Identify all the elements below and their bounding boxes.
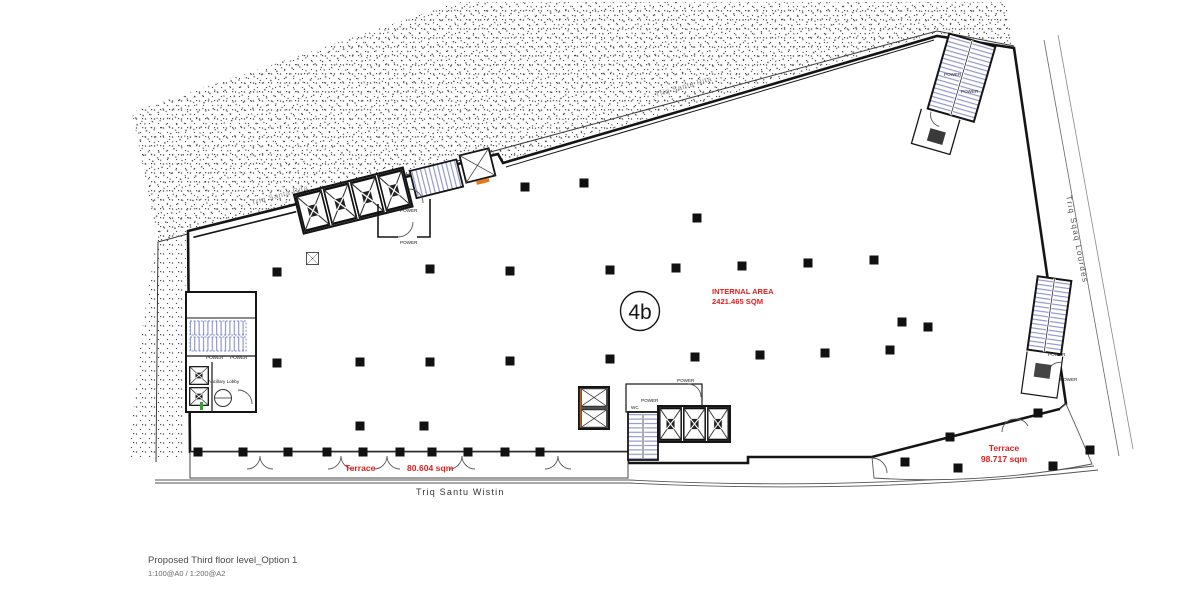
title-block: Proposed Third floor level_Option 1 1:10… <box>148 555 297 578</box>
column <box>580 179 589 188</box>
street-east-label: Triq Sqaq Lourdes <box>1064 195 1090 284</box>
floor-plan-page: POWER POWER POWER POWER Ancillary Lobby <box>0 0 1200 592</box>
column <box>359 448 368 457</box>
unit-number: 4b <box>628 301 651 324</box>
floor-plan-drawing: POWER POWER POWER POWER Ancillary Lobby <box>0 0 1200 592</box>
column <box>1049 462 1058 471</box>
column <box>464 448 473 457</box>
power-label: POWER <box>1048 352 1066 357</box>
column <box>954 464 963 473</box>
power-label: POWER <box>944 72 962 77</box>
terrace-east-area: 98.717 sqm <box>981 454 1028 464</box>
column <box>194 448 203 457</box>
wc-label: WC <box>631 405 639 410</box>
column <box>756 351 765 360</box>
column <box>870 256 879 265</box>
power-label: POWER <box>230 355 248 360</box>
column <box>924 323 933 332</box>
power-label: POWER <box>400 208 418 213</box>
column <box>426 358 435 367</box>
power-label: POWER <box>400 240 418 245</box>
column <box>1034 409 1043 418</box>
power-label: POWER <box>1060 377 1078 382</box>
column <box>606 355 615 364</box>
column <box>356 422 365 431</box>
column <box>284 448 293 457</box>
column <box>428 448 437 457</box>
column <box>239 448 248 457</box>
column <box>506 267 515 276</box>
column <box>506 357 515 366</box>
internal-area-value: 2421.465 SQM <box>712 297 763 306</box>
column <box>501 448 510 457</box>
column <box>420 422 429 431</box>
shaft-symbol <box>306 252 318 264</box>
column <box>898 318 907 327</box>
column <box>606 266 615 275</box>
west-core: POWER POWER Ancillary Lobby <box>186 292 256 412</box>
column <box>691 353 700 362</box>
terrace-south-label: Terrace <box>345 463 376 473</box>
street-south-label: Triq Santu Wistin <box>416 487 505 497</box>
power-label: POWER <box>206 355 224 360</box>
column <box>536 448 545 457</box>
column <box>886 346 895 355</box>
drawing-scale: 1:100@A0 / 1:200@A2 <box>148 569 225 578</box>
column <box>356 358 365 367</box>
terrace-south-area: 80.604 sqm <box>407 463 454 473</box>
column <box>521 183 530 192</box>
column <box>821 349 830 358</box>
ancillary-lobby-label: Ancillary Lobby <box>208 379 240 384</box>
column <box>672 264 681 273</box>
internal-area-title: INTERNAL AREA <box>712 287 774 296</box>
column <box>323 448 332 457</box>
column <box>946 433 955 442</box>
column <box>804 259 813 268</box>
power-label: POWER <box>677 378 695 383</box>
column <box>273 268 282 277</box>
column <box>1086 446 1095 455</box>
column <box>273 359 282 368</box>
column <box>396 448 405 457</box>
terrace-east-label: Terrace <box>989 443 1020 453</box>
column <box>426 265 435 274</box>
drawing-title: Proposed Third floor level_Option 1 <box>148 555 297 566</box>
column <box>738 262 747 271</box>
power-label: POWER <box>961 89 979 94</box>
power-label: POWER <box>641 398 659 403</box>
column <box>693 214 702 223</box>
column <box>901 458 910 467</box>
